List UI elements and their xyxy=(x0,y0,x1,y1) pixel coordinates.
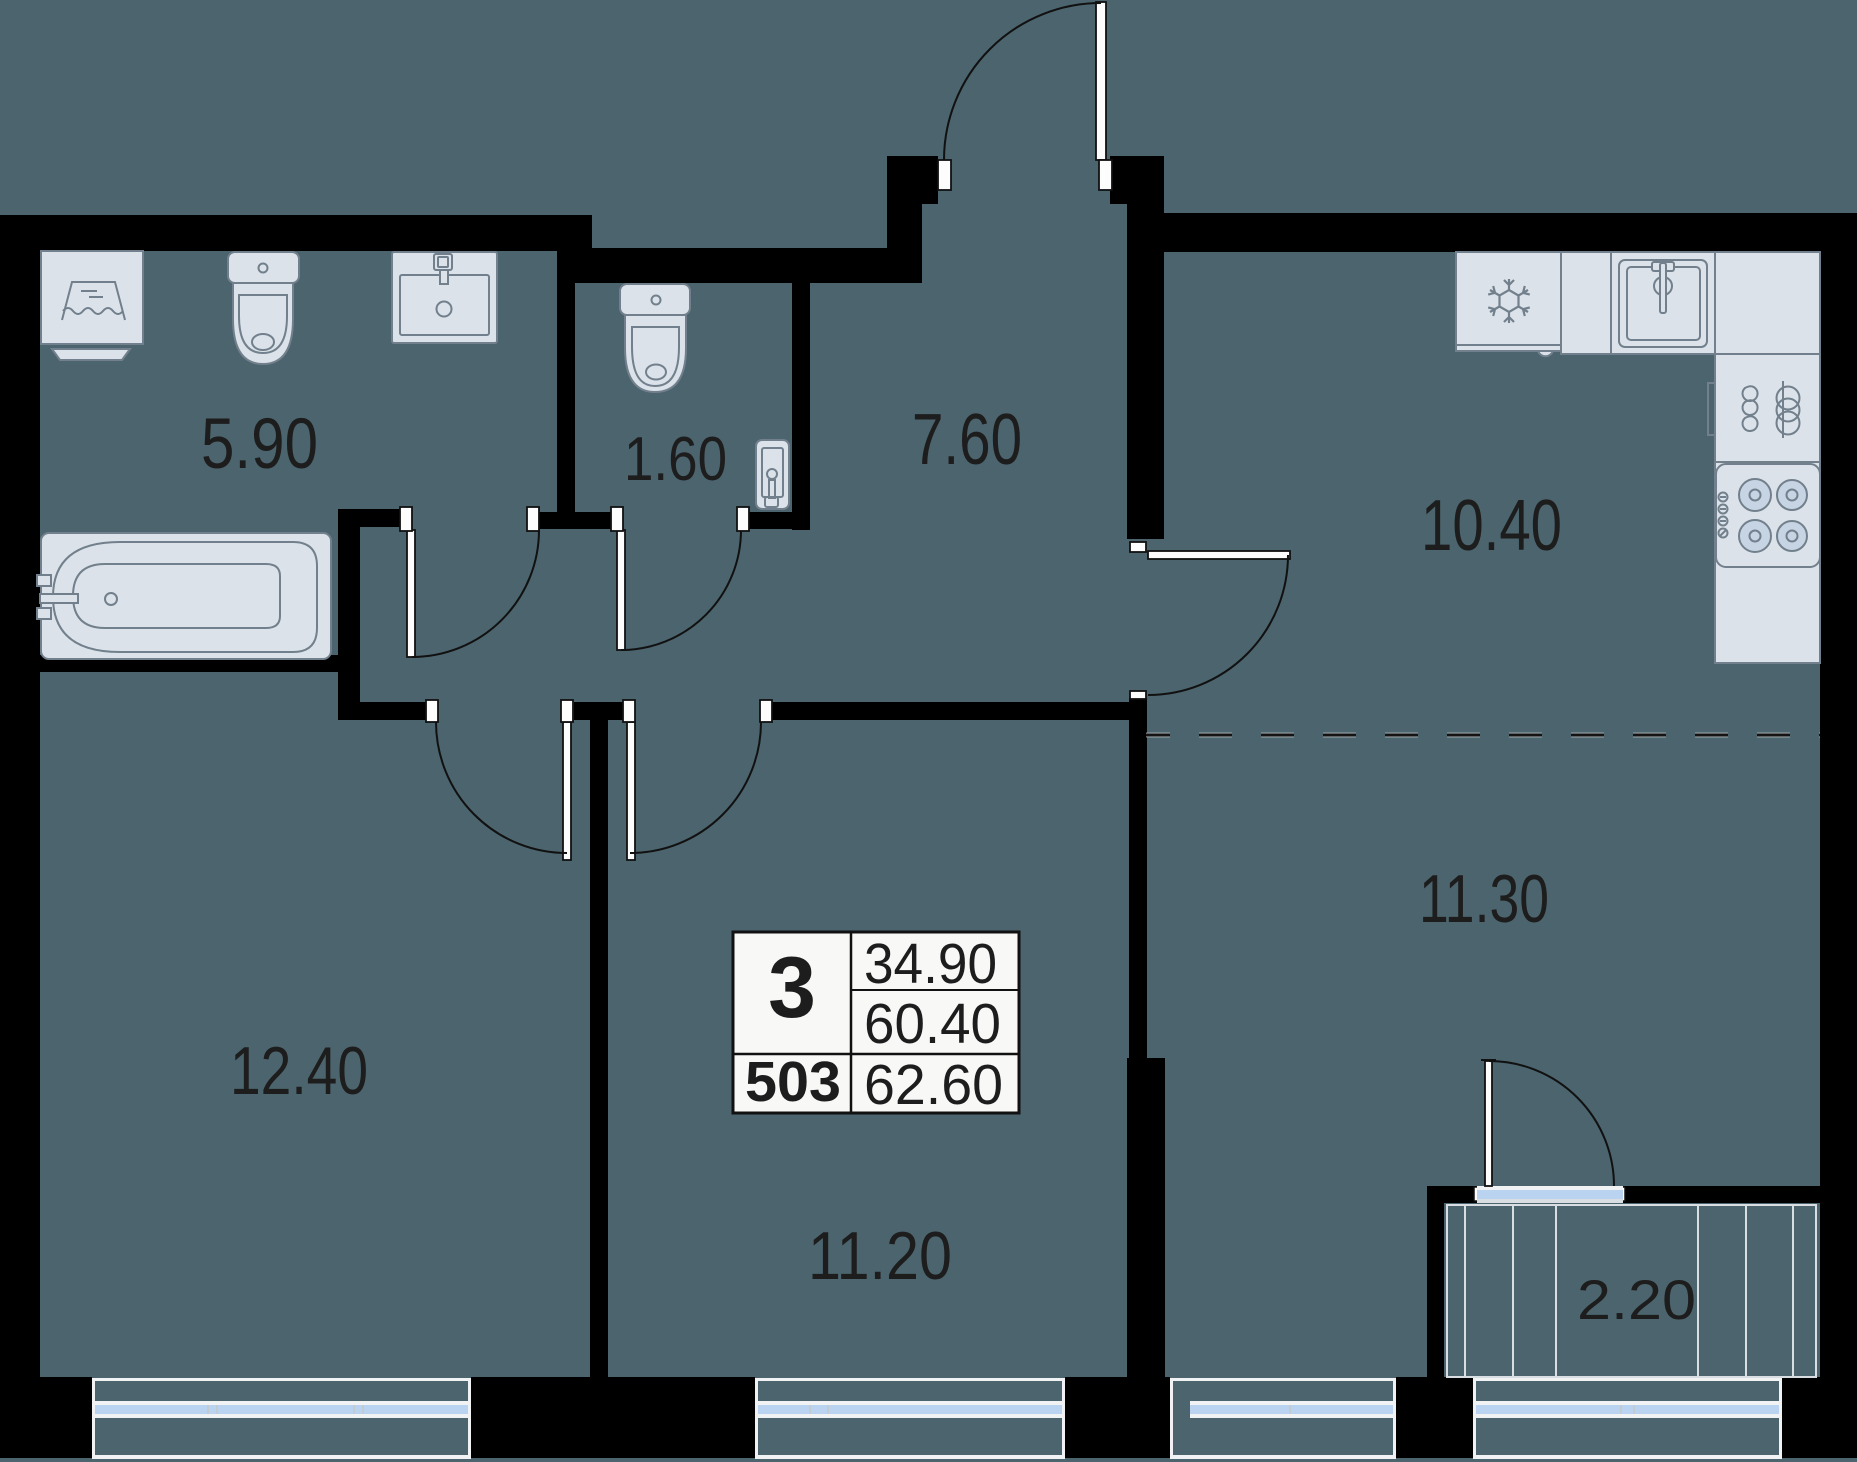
svg-text:2.20: 2.20 xyxy=(1577,1268,1696,1331)
svg-text:7.60: 7.60 xyxy=(912,400,1022,480)
svg-text:34.90: 34.90 xyxy=(864,932,997,996)
svg-text:10.40: 10.40 xyxy=(1421,486,1562,566)
svg-text:12.40: 12.40 xyxy=(230,1033,368,1109)
svg-text:62.60: 62.60 xyxy=(864,1053,1003,1117)
svg-text:503: 503 xyxy=(745,1050,841,1114)
svg-text:11.30: 11.30 xyxy=(1419,861,1549,937)
svg-text:5.90: 5.90 xyxy=(201,405,318,484)
svg-text:60.40: 60.40 xyxy=(864,992,1001,1056)
svg-text:1.60: 1.60 xyxy=(624,425,727,494)
svg-text:3: 3 xyxy=(768,940,816,1036)
svg-text:11.20: 11.20 xyxy=(808,1218,952,1294)
